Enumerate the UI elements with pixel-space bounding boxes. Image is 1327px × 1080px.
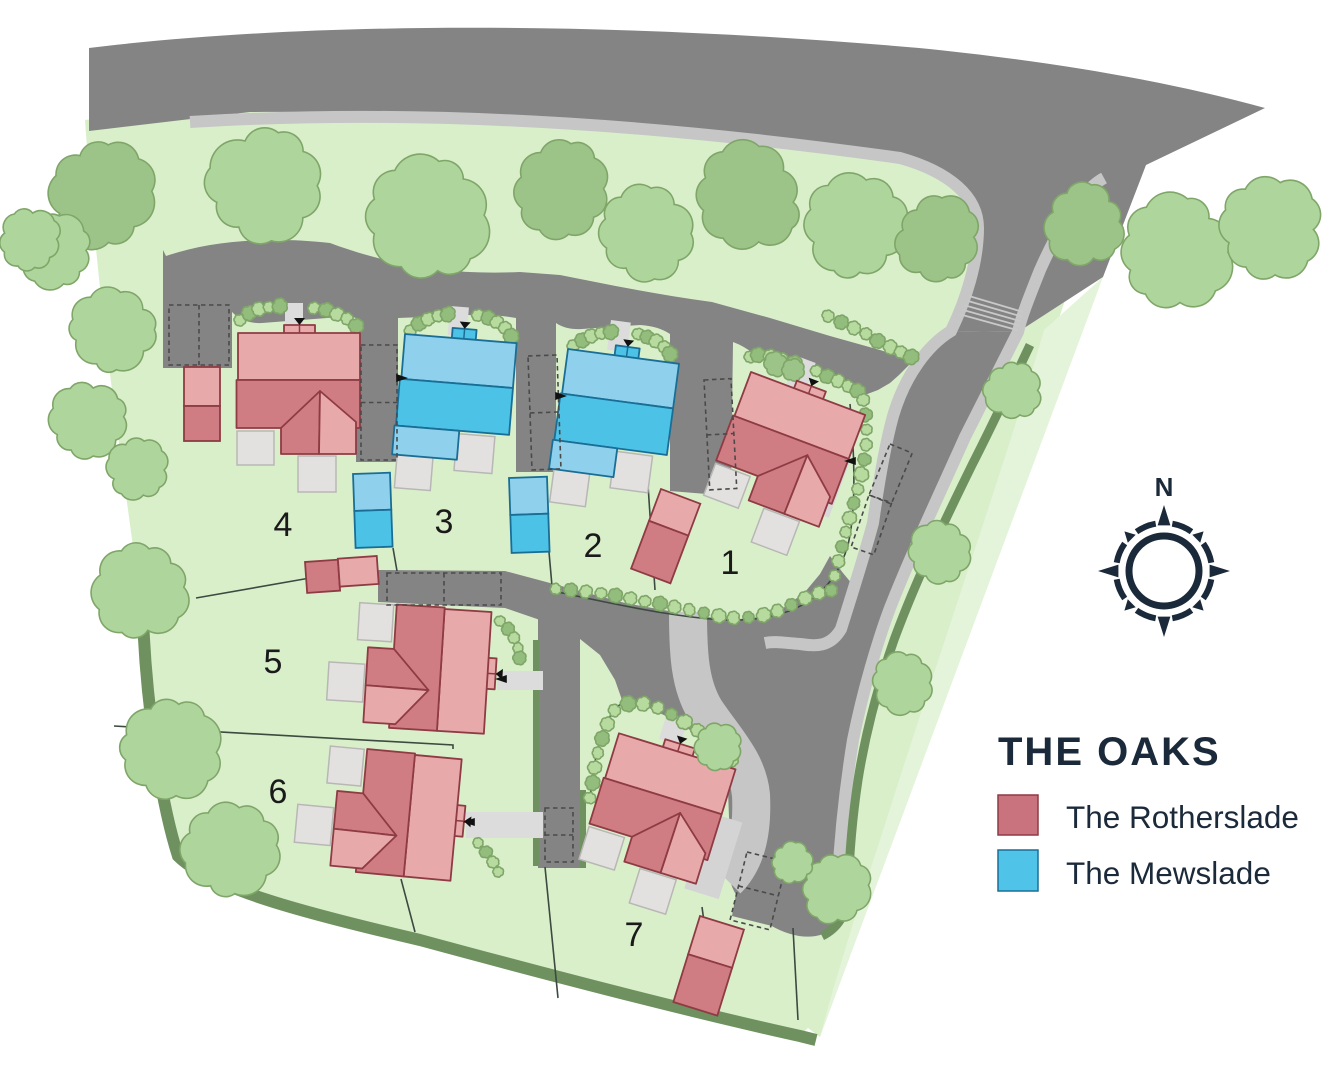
- svg-text:3: 3: [435, 503, 454, 541]
- svg-text:The Rotherslade: The Rotherslade: [1066, 799, 1299, 835]
- svg-text:N: N: [1155, 472, 1174, 502]
- svg-text:5: 5: [264, 643, 283, 681]
- svg-text:THE OAKS: THE OAKS: [998, 730, 1221, 774]
- svg-text:4: 4: [274, 506, 293, 544]
- svg-text:1: 1: [721, 544, 740, 582]
- svg-text:The Mewslade: The Mewslade: [1066, 855, 1271, 891]
- svg-text:7: 7: [625, 916, 644, 954]
- svg-text:6: 6: [269, 773, 288, 811]
- svg-text:2: 2: [584, 527, 603, 565]
